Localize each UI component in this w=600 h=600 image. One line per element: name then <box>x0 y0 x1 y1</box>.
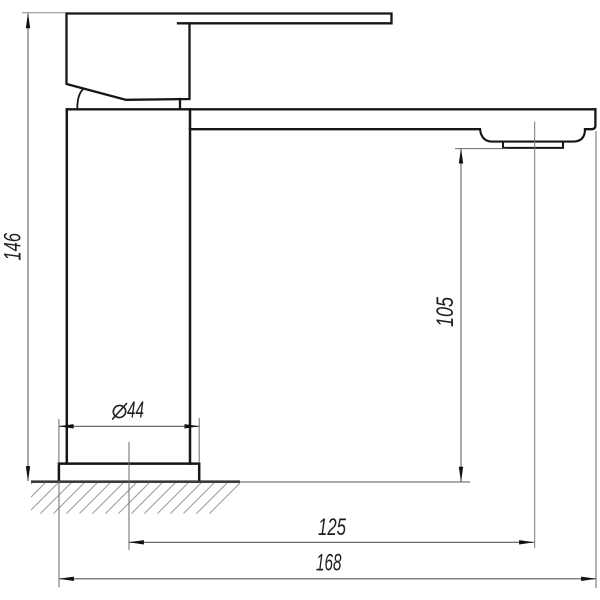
svg-text:168: 168 <box>316 550 342 577</box>
svg-text:146: 146 <box>0 233 27 261</box>
svg-text:44: 44 <box>127 397 144 423</box>
svg-text:105: 105 <box>432 297 459 327</box>
svg-text:125: 125 <box>318 514 346 541</box>
